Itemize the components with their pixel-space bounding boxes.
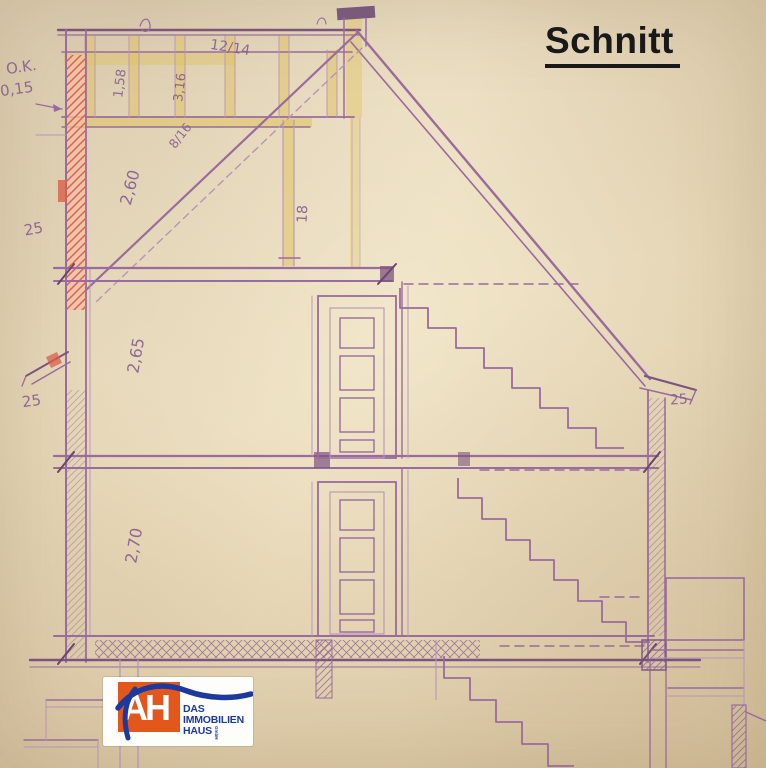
stairs-attic <box>400 288 624 448</box>
dim-post-width: 18 <box>294 205 311 224</box>
scanned-blueprint-page: O.K. 0,15 12/14 1,58 3,16 8/16 2,60 18 2… <box>0 0 766 768</box>
level-ticks <box>58 264 660 664</box>
dim-wall-right: 25 <box>669 391 688 408</box>
page-title: Schnitt <box>545 20 680 68</box>
logo-suffix: GmbH <box>214 726 219 740</box>
timber-highlights <box>64 18 362 268</box>
stairs-middle <box>458 478 650 642</box>
leader-arrow <box>36 104 62 112</box>
roof-slope-right <box>357 31 650 379</box>
stairs <box>400 288 650 766</box>
exterior-stair-right <box>652 578 766 768</box>
left-wall-red-hatch <box>67 55 85 310</box>
left-eave <box>22 352 70 386</box>
ground-slab-hatch <box>95 640 480 658</box>
pencil-squiggle <box>317 18 326 24</box>
red-mark <box>58 180 67 202</box>
stairs-basement <box>444 656 574 766</box>
dim-wall-upper-left: 25 <box>23 218 45 239</box>
section-drawing-svg <box>0 0 766 768</box>
lower-door <box>318 482 396 636</box>
floor-slabs <box>30 264 700 667</box>
company-logo: AH DAS IMMOBILIEN HAUS GmbH <box>103 677 253 746</box>
dashed-floor-lines <box>404 284 644 646</box>
dim-wall-lower-left: 25 <box>21 391 42 411</box>
upper-door <box>318 296 396 458</box>
